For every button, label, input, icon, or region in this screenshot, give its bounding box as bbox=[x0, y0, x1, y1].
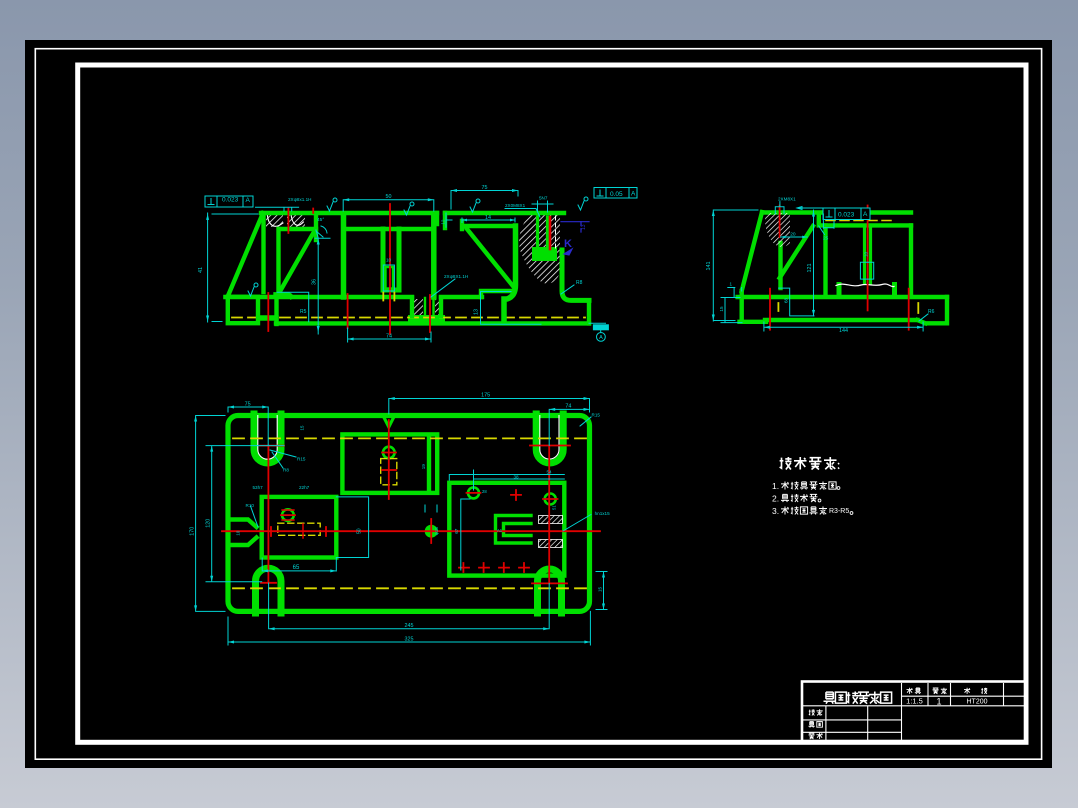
svg-text:R8: R8 bbox=[576, 280, 583, 286]
svg-text:A: A bbox=[246, 197, 251, 204]
svg-text:1:1.5: 1:1.5 bbox=[906, 697, 923, 706]
svg-text:170: 170 bbox=[189, 527, 195, 536]
svg-text:A: A bbox=[863, 211, 868, 218]
svg-text:36: 36 bbox=[312, 279, 318, 285]
svg-text:0.023: 0.023 bbox=[222, 197, 239, 204]
svg-text:15: 15 bbox=[598, 586, 603, 592]
svg-text:2Xψ8X1.1H: 2Xψ8X1.1H bbox=[444, 274, 468, 279]
svg-text:13: 13 bbox=[474, 309, 480, 315]
svg-text:R8: R8 bbox=[283, 468, 289, 473]
svg-text:141: 141 bbox=[706, 262, 712, 271]
svg-text:22h7: 22h7 bbox=[299, 485, 310, 490]
svg-text:325: 325 bbox=[405, 637, 414, 643]
svg-text:2.: 2. bbox=[772, 494, 779, 504]
svg-text:20: 20 bbox=[790, 232, 796, 238]
svg-text:13: 13 bbox=[581, 224, 587, 230]
svg-text:R15: R15 bbox=[297, 457, 306, 462]
svg-text:120: 120 bbox=[206, 519, 212, 528]
svg-text:R5: R5 bbox=[300, 309, 307, 315]
svg-text:2Xψ8x1.1H: 2Xψ8x1.1H bbox=[288, 197, 311, 202]
svg-text:67: 67 bbox=[454, 528, 459, 534]
svg-text:R10: R10 bbox=[246, 503, 255, 508]
svg-text:R3-R5: R3-R5 bbox=[829, 508, 849, 515]
svg-text:15: 15 bbox=[300, 425, 305, 430]
svg-text:R6: R6 bbox=[928, 309, 935, 315]
svg-text:51: 51 bbox=[552, 505, 557, 510]
svg-text:1: 1 bbox=[936, 696, 941, 706]
svg-text:5N7: 5N7 bbox=[539, 196, 548, 201]
svg-text:12: 12 bbox=[441, 219, 446, 224]
svg-text:hn1x15: hn1x15 bbox=[595, 511, 611, 516]
svg-text:144: 144 bbox=[839, 328, 848, 334]
svg-text:2X0M8X1: 2X0M8X1 bbox=[505, 203, 526, 208]
svg-text:38: 38 bbox=[513, 475, 519, 480]
svg-text:0.05: 0.05 bbox=[610, 191, 623, 198]
svg-text:HT200: HT200 bbox=[966, 699, 987, 706]
svg-text:28: 28 bbox=[482, 489, 487, 494]
svg-text:φ18: φ18 bbox=[434, 527, 439, 536]
svg-text:74: 74 bbox=[386, 334, 392, 340]
svg-text:15: 15 bbox=[719, 306, 724, 312]
svg-text:65: 65 bbox=[293, 565, 300, 571]
svg-text:74: 74 bbox=[565, 404, 571, 410]
svg-text:A1: A1 bbox=[497, 528, 503, 533]
svg-text:1: 1 bbox=[730, 282, 733, 287]
svg-text:75: 75 bbox=[482, 185, 488, 191]
svg-text:K: K bbox=[564, 238, 572, 250]
svg-text:41: 41 bbox=[198, 267, 204, 273]
svg-text:68: 68 bbox=[784, 297, 789, 303]
svg-text:121: 121 bbox=[807, 264, 813, 273]
svg-text:53h7: 53h7 bbox=[252, 485, 263, 490]
svg-text:54: 54 bbox=[546, 470, 552, 475]
svg-text:R15: R15 bbox=[592, 413, 601, 418]
svg-text:10: 10 bbox=[236, 530, 241, 536]
svg-text:A: A bbox=[599, 335, 603, 341]
svg-text:3.: 3. bbox=[772, 506, 779, 516]
svg-text:175: 175 bbox=[481, 393, 490, 399]
svg-text:1.: 1. bbox=[772, 481, 779, 491]
svg-text:50: 50 bbox=[386, 194, 392, 200]
svg-text:10: 10 bbox=[386, 258, 392, 263]
svg-text:2XM8X1: 2XM8X1 bbox=[778, 197, 796, 202]
svg-text:0.023: 0.023 bbox=[838, 212, 855, 219]
svg-text:50: 50 bbox=[357, 528, 363, 534]
svg-text:A: A bbox=[631, 191, 636, 198]
svg-text:14: 14 bbox=[485, 215, 491, 221]
svg-text:19: 19 bbox=[421, 464, 426, 470]
svg-text:75: 75 bbox=[245, 401, 251, 407]
svg-text:45°: 45° bbox=[317, 217, 324, 223]
svg-text:25: 25 bbox=[823, 236, 829, 242]
svg-text:10: 10 bbox=[864, 251, 869, 257]
svg-text:245: 245 bbox=[405, 623, 414, 629]
